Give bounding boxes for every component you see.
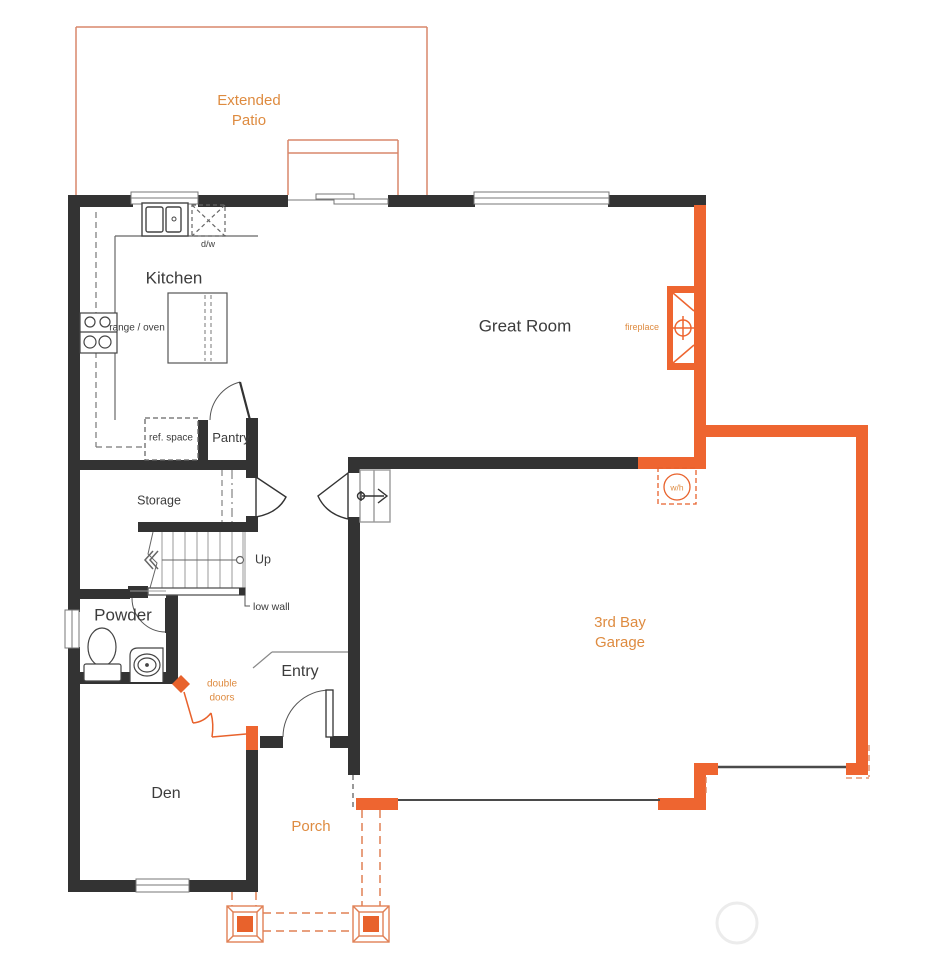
garage-hall-door-frame: [358, 470, 391, 522]
dishwasher: [192, 205, 225, 236]
windows: [65, 192, 609, 892]
extended-patio-outline: [76, 27, 427, 195]
pantry-door: [210, 382, 250, 420]
kitchen-island: [168, 293, 227, 363]
powder-sink: [130, 648, 163, 682]
storage-overhead-dashed: [222, 470, 232, 522]
porch-post-left: [227, 906, 263, 942]
range-oven: [80, 313, 117, 353]
water-heater: [658, 468, 696, 504]
kitchen-sink: [142, 203, 188, 236]
exterior-walls: [68, 195, 706, 892]
entry-boundary: [253, 652, 348, 668]
floor-plan: Extended Patio Kitchen d/w range / oven …: [0, 0, 927, 957]
front-door: [283, 690, 333, 737]
kitchen-window: [131, 192, 198, 204]
stairs-direction: [145, 532, 244, 588]
den-window: [136, 879, 189, 892]
toilet: [84, 628, 121, 681]
watermark-circle: [717, 903, 757, 943]
floor-plan-drawing: [0, 0, 927, 957]
storage-door: [256, 477, 286, 517]
great-room-window: [474, 192, 609, 204]
refrigerator-space: [145, 418, 198, 460]
garage-overhang-dashed: [706, 745, 869, 797]
garage-hall-door: [318, 473, 348, 519]
sliding-door: [288, 194, 388, 204]
den-double-doors: [184, 692, 246, 737]
powder-window: [65, 610, 79, 648]
interior-walls: [68, 418, 638, 775]
garage-door: [398, 767, 846, 800]
porch-post-right: [353, 906, 389, 942]
